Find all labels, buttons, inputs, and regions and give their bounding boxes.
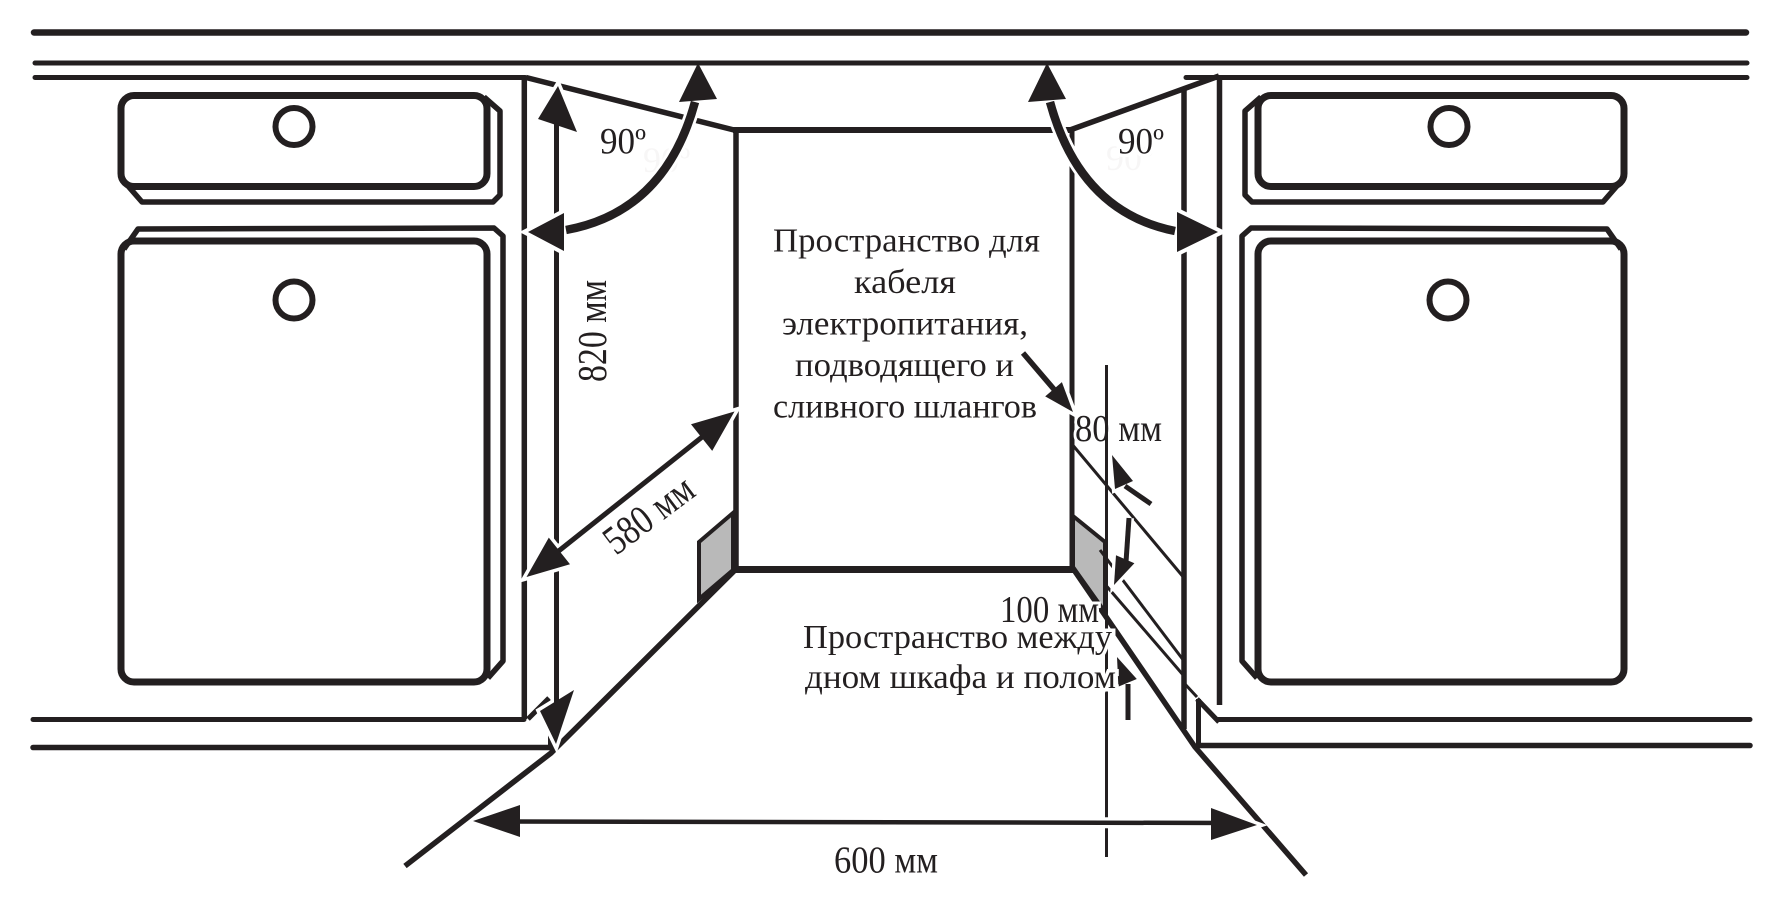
svg-text:Пространство между: Пространство между bbox=[803, 619, 1112, 656]
svg-text:90º: 90º bbox=[1118, 121, 1164, 162]
svg-text:Пространство для: Пространство для bbox=[773, 223, 1040, 260]
svg-text:кабеля: кабеля bbox=[854, 264, 956, 301]
svg-text:820 мм: 820 мм bbox=[569, 280, 615, 382]
svg-text:80 мм: 80 мм bbox=[1075, 408, 1162, 450]
svg-text:подводящего и: подводящего и bbox=[795, 347, 1014, 384]
svg-text:дном шкафа и полом: дном шкафа и полом bbox=[805, 659, 1116, 696]
svg-text:сливного шлангов: сливного шлангов bbox=[773, 389, 1037, 426]
svg-text:электропитания,: электропитания, bbox=[782, 306, 1028, 343]
svg-text:90º: 90º bbox=[600, 121, 646, 162]
svg-text:600 мм: 600 мм bbox=[834, 840, 938, 882]
